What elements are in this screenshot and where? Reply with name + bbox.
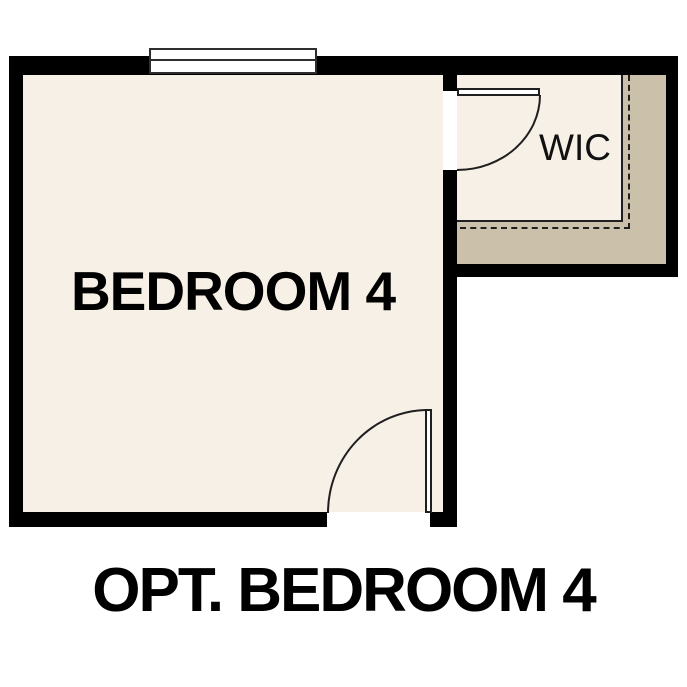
floor-plan: BEDROOM 4 WIC OPT. BEDROOM 4 — [0, 0, 687, 687]
closet-rod-dashed-line-horizontal — [460, 227, 630, 229]
wall-wic-bottom — [443, 264, 678, 277]
room-label-bedroom-4: BEDROOM 4 — [23, 264, 443, 319]
wall-bottom-left — [9, 512, 327, 527]
wall-divider-lower — [443, 170, 457, 527]
wall-divider-stub — [443, 75, 457, 91]
wic-door-panel — [457, 88, 540, 96]
wall-top — [9, 56, 678, 75]
wall-left — [9, 56, 23, 527]
bedroom-door-panel — [425, 409, 432, 513]
room-label-wic: WIC — [505, 129, 645, 166]
plan-caption: OPT. BEDROOM 4 — [0, 560, 687, 622]
window-icon — [149, 48, 317, 74]
window-mullion-line — [151, 50, 315, 61]
wall-right — [666, 56, 678, 277]
wall-bottom-stub — [430, 512, 457, 527]
